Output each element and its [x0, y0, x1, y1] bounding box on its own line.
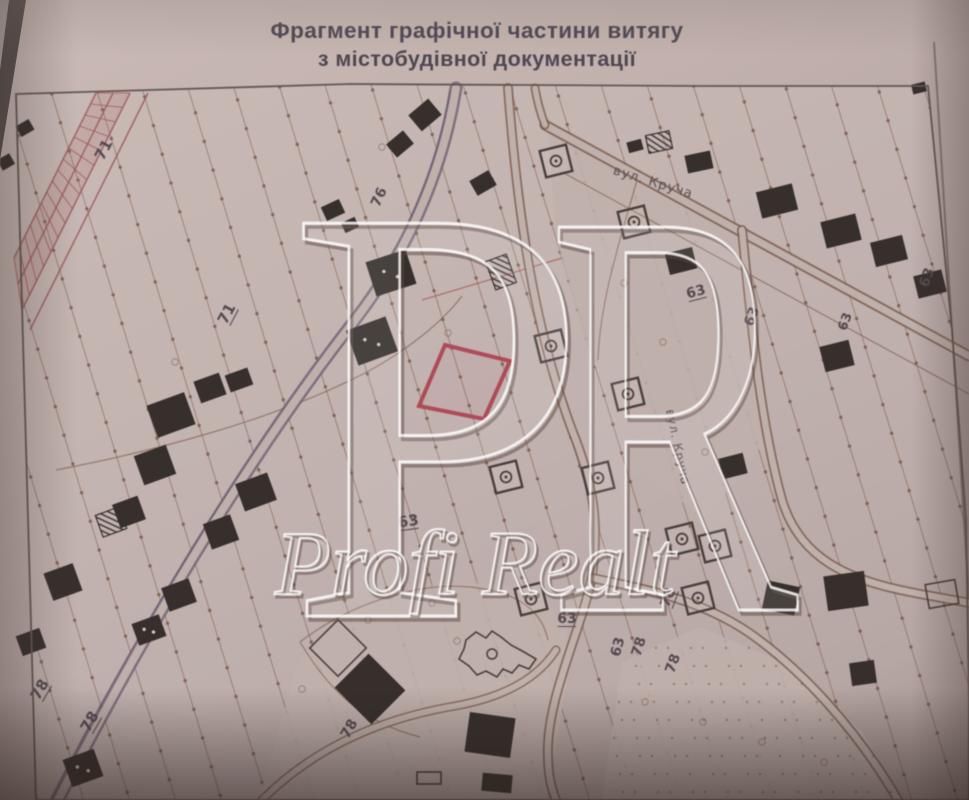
ground-dot — [779, 755, 781, 757]
building-footprint — [481, 773, 512, 794]
ground-dot — [724, 773, 726, 775]
ground-dot — [774, 791, 776, 793]
building-footprint — [823, 571, 868, 611]
watermark-letter-p-icon: P — [288, 81, 588, 746]
ground-dot — [867, 791, 869, 793]
ground-dot — [801, 683, 803, 685]
ground-dot — [651, 755, 653, 757]
document-title: Фрагмент графічної частини витягу з міст… — [271, 18, 684, 71]
title-line-2: з містобудівної документації — [318, 47, 637, 71]
ground-dot — [756, 755, 758, 757]
ground-dot — [831, 719, 833, 721]
ground-dot — [674, 755, 676, 757]
ground-dot — [739, 791, 741, 793]
ground-dot — [872, 755, 874, 757]
ground-dot — [797, 791, 799, 793]
ground-dot — [814, 755, 816, 757]
ground-dot — [657, 791, 659, 793]
ground-dot — [631, 773, 633, 775]
title-line-1: Фрагмент графічної частини витягу — [271, 18, 684, 43]
photographed-document: 71717678786363636363787878636378вул. Кру… — [0, 0, 969, 800]
ground-dot — [744, 755, 746, 757]
ground-dot — [816, 701, 818, 703]
ground-dot — [616, 755, 618, 757]
ground-dot — [727, 791, 729, 793]
ground-dot — [855, 791, 857, 793]
ground-dot — [689, 773, 691, 775]
ground-dot — [802, 755, 804, 757]
ground-dot — [832, 791, 834, 793]
ground-dot — [819, 719, 821, 721]
ground-dot — [890, 791, 892, 793]
ground-dot — [692, 791, 694, 793]
ground-dot — [837, 755, 839, 757]
ground-dot — [817, 773, 819, 775]
ground-dot — [712, 773, 714, 775]
ground-dot — [794, 773, 796, 775]
ground-dot — [864, 773, 866, 775]
watermark-name-text: Profi Realt — [274, 512, 677, 614]
ground-dot — [669, 791, 671, 793]
ground-dot — [834, 737, 836, 739]
ground-dot — [849, 755, 851, 757]
ground-dot — [639, 755, 641, 757]
watermark-letter-r-icon: R — [548, 89, 800, 737]
ground-dot — [721, 755, 723, 757]
ground-dot — [704, 791, 706, 793]
ground-dot — [747, 773, 749, 775]
ground-dot — [686, 755, 688, 757]
ground-dot — [852, 773, 854, 775]
ground-dot — [782, 773, 784, 775]
ground-dot — [820, 791, 822, 793]
ground-dot — [846, 737, 848, 739]
ground-dot — [622, 791, 624, 793]
ground-dot — [634, 791, 636, 793]
watermark: P P R R Profi Realt Profi Realt — [274, 81, 803, 750]
ground-dot — [666, 773, 668, 775]
ground-dot — [709, 755, 711, 757]
ground-dot — [811, 737, 813, 739]
ground-dot — [829, 773, 831, 775]
cadastral-map-canvas: 71717678786363636363787878636378вул. Кру… — [0, 0, 969, 800]
ground-dot — [619, 773, 621, 775]
ground-dot — [654, 773, 656, 775]
ground-dot — [759, 773, 761, 775]
ground-dot — [762, 791, 764, 793]
building-footprint — [849, 660, 877, 686]
building-footprint — [0, 153, 15, 170]
